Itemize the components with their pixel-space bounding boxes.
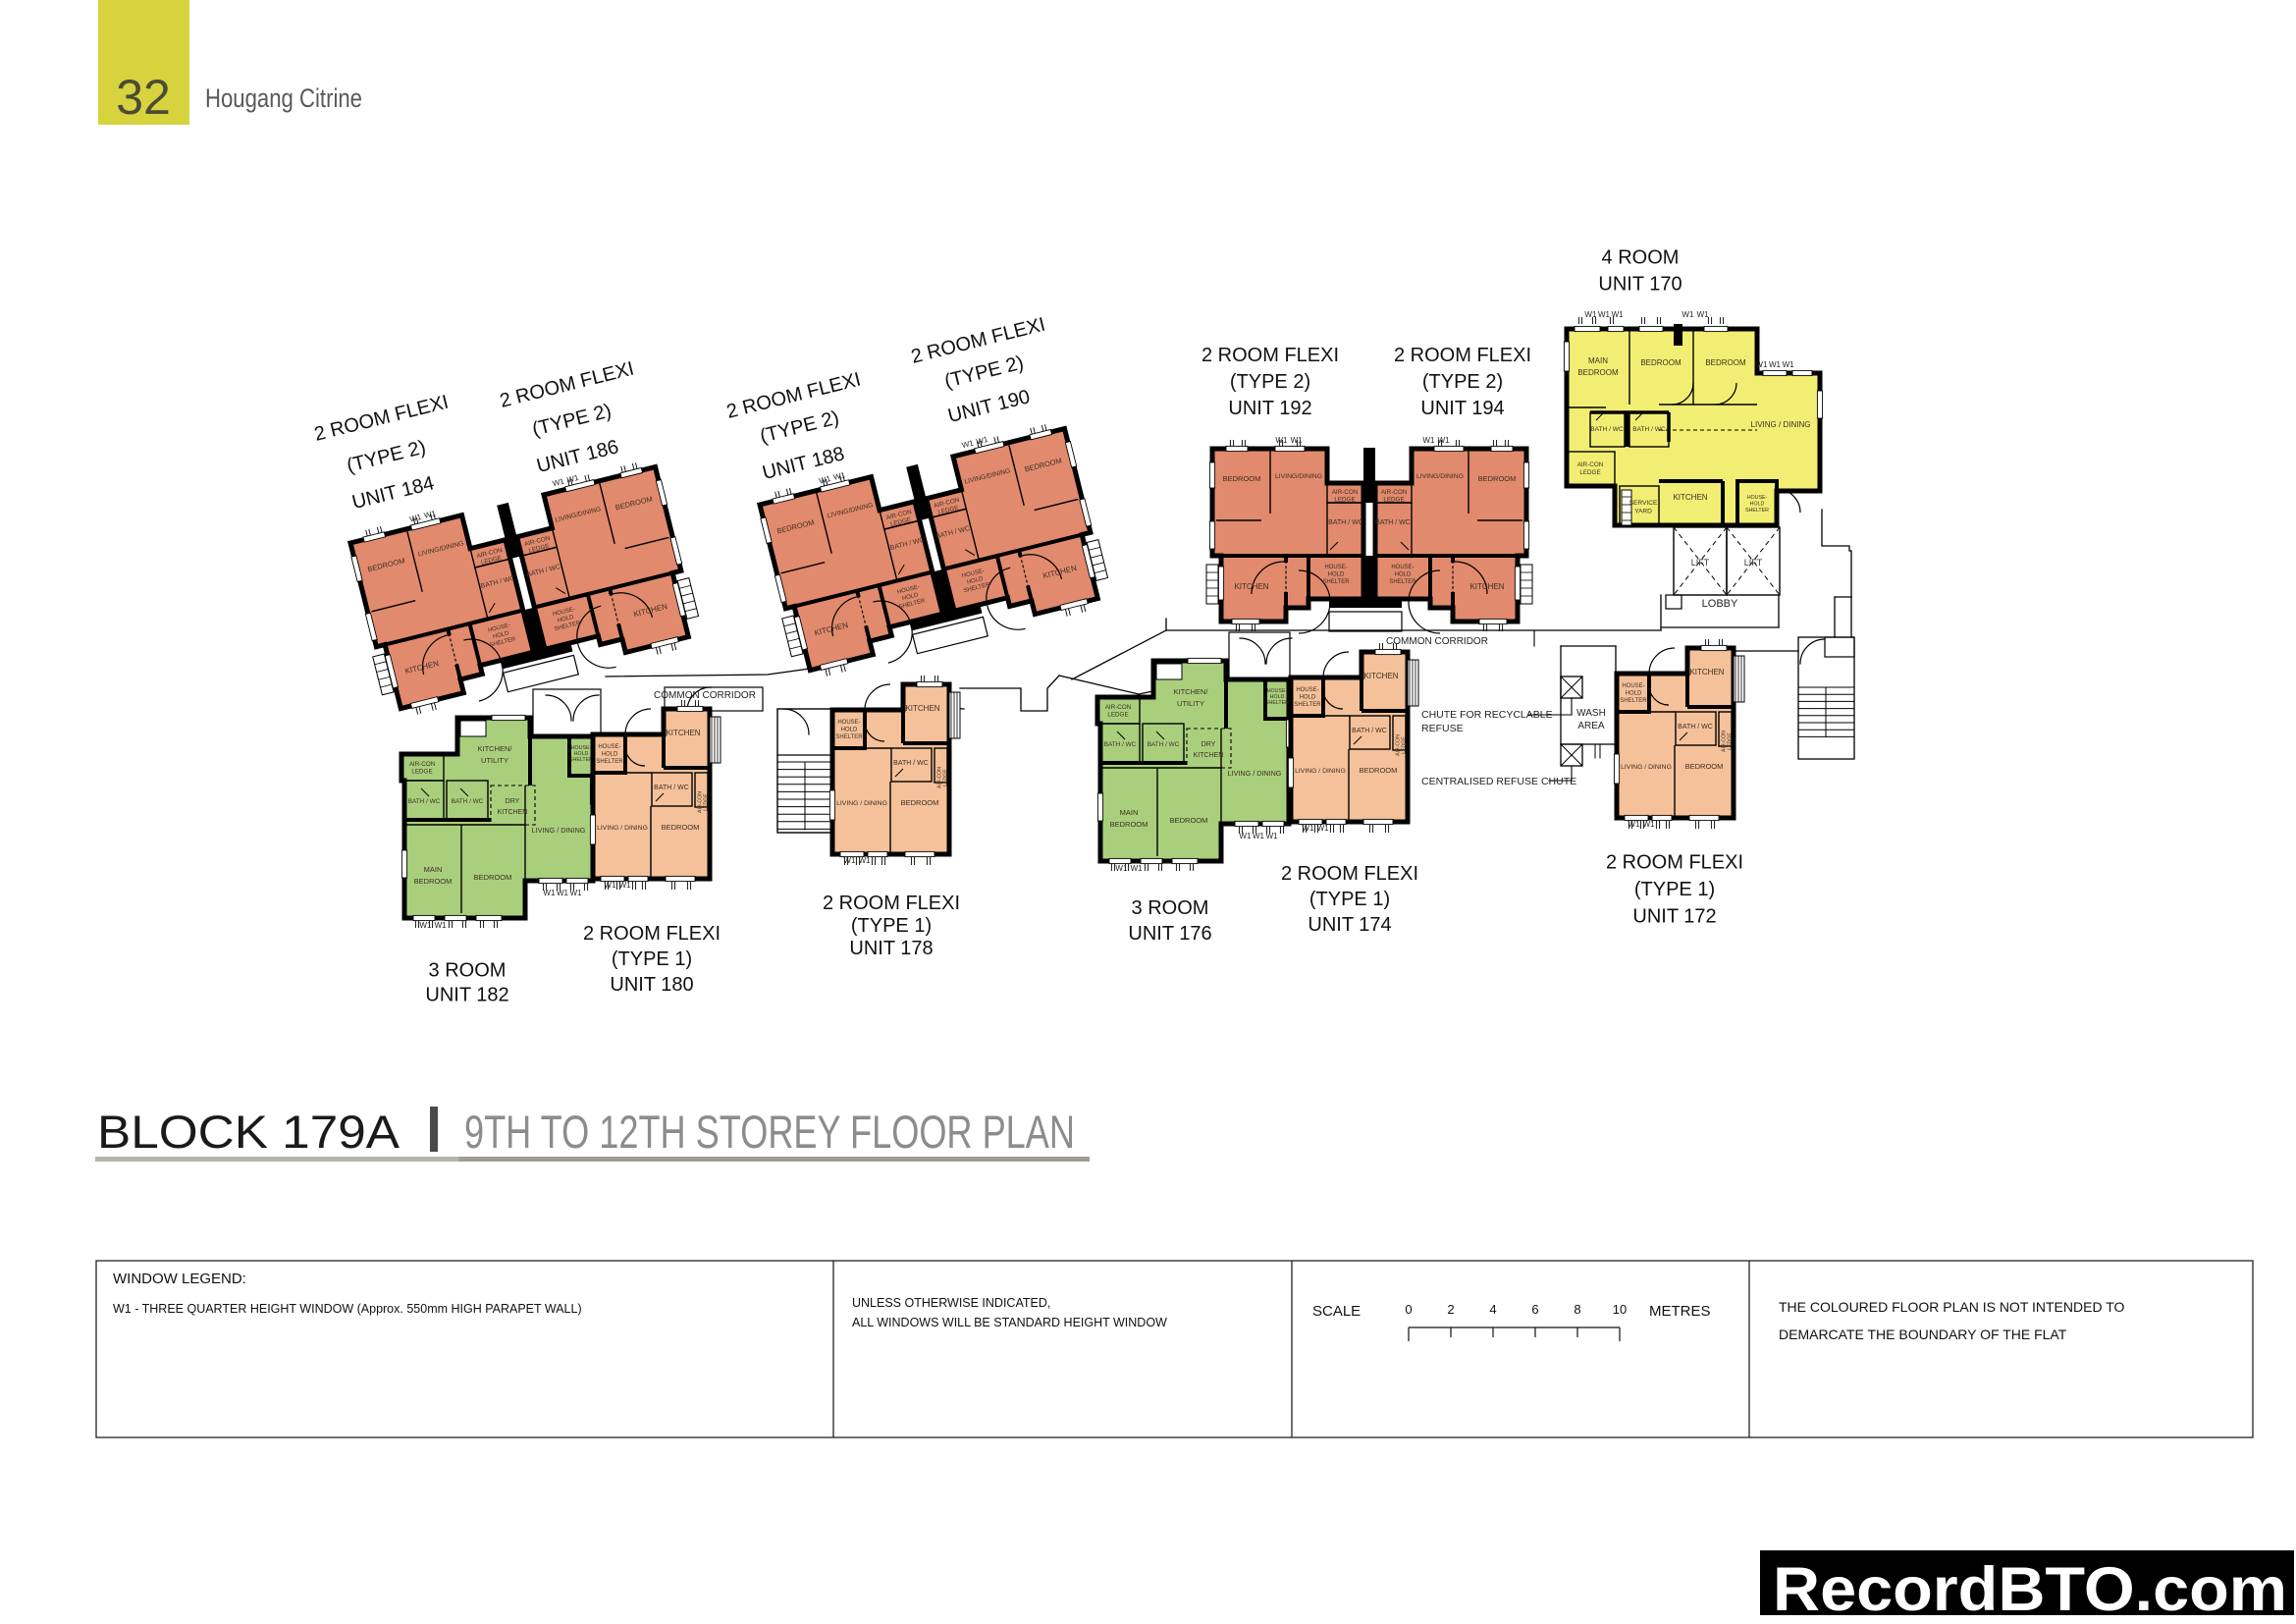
svg-text:LIVING/DINING: LIVING/DINING: [1416, 473, 1464, 480]
svg-text:4: 4: [1489, 1302, 1496, 1317]
svg-text:W1 W1 W1: W1 W1 W1: [1755, 360, 1794, 369]
svg-text:32: 32: [116, 70, 171, 125]
svg-text:MAIN: MAIN: [1588, 356, 1608, 365]
svg-text:DEMARCATE THE BOUNDARY OF THE: DEMARCATE THE BOUNDARY OF THE FLAT: [1779, 1326, 2067, 1342]
svg-text:W1 W1: W1 W1: [1682, 310, 1709, 319]
svg-text:BATH / WC: BATH / WC: [1104, 741, 1137, 748]
svg-text:HOUSE-: HOUSE-: [1296, 687, 1318, 693]
svg-text:SHELTER: SHELTER: [1265, 700, 1289, 706]
svg-text:LEDGE: LEDGE: [943, 769, 949, 786]
svg-text:KITCHEN: KITCHEN: [1194, 752, 1224, 759]
svg-text:BATH / WC: BATH / WC: [1678, 724, 1713, 731]
svg-text:UNIT 180: UNIT 180: [610, 974, 693, 996]
svg-text:BEDROOM: BEDROOM: [1577, 368, 1619, 377]
svg-text:2 ROOM FLEXI: 2 ROOM FLEXI: [1281, 863, 1418, 885]
svg-text:W1 W1 W1: W1 W1 W1: [1239, 832, 1278, 840]
svg-text:MAIN: MAIN: [424, 865, 443, 874]
svg-text:SHELTER: SHELTER: [1294, 702, 1321, 708]
svg-text:3 ROOM: 3 ROOM: [1132, 897, 1209, 919]
svg-text:HOUSE-: HOUSE-: [1391, 565, 1414, 570]
svg-text:BEDROOM: BEDROOM: [662, 823, 700, 832]
svg-text:KITCHEN: KITCHEN: [1234, 582, 1268, 591]
svg-text:HOLD: HOLD: [1300, 695, 1316, 701]
svg-text:HOUSE-: HOUSE-: [1747, 495, 1768, 501]
svg-text:AIR-CON: AIR-CON: [409, 761, 436, 768]
svg-text:SHELTER: SHELTER: [596, 759, 623, 765]
svg-text:LOBBY: LOBBY: [1702, 598, 1738, 610]
svg-text:BEDROOM: BEDROOM: [1170, 816, 1208, 825]
svg-text:W1 - THREE QUARTER HEIGHT WIND: W1 - THREE QUARTER HEIGHT WINDOW (Approx…: [113, 1302, 582, 1316]
svg-text:0: 0: [1405, 1302, 1412, 1317]
svg-text:AREA: AREA: [1577, 721, 1605, 731]
svg-text:RecordBTO.com: RecordBTO.com: [1773, 1555, 2287, 1624]
svg-text:KITCHEN: KITCHEN: [666, 729, 700, 737]
svg-text:UNIT 172: UNIT 172: [1632, 906, 1716, 928]
svg-text:(TYPE 2): (TYPE 2): [1422, 371, 1503, 393]
svg-text:UNIT 182: UNIT 182: [425, 985, 508, 1006]
svg-text:WINDOW LEGEND:: WINDOW LEGEND:: [113, 1271, 246, 1287]
svg-text:6: 6: [1531, 1302, 1538, 1317]
svg-text:2 ROOM FLEXI: 2 ROOM FLEXI: [1606, 852, 1743, 874]
svg-text:CENTRALISED REFUSE CHUTE: CENTRALISED REFUSE CHUTE: [1421, 776, 1576, 787]
svg-text:9TH TO 12TH STOREY FLOOR PLAN: 9TH TO 12TH STOREY FLOOR PLAN: [464, 1106, 1075, 1158]
svg-text:LEDGE: LEDGE: [1402, 736, 1408, 754]
svg-text:LEDGE: LEDGE: [704, 793, 710, 811]
svg-text:BEDROOM: BEDROOM: [1223, 474, 1261, 483]
svg-text:LIVING/DINING: LIVING/DINING: [1275, 473, 1322, 480]
svg-text:UTILITY: UTILITY: [481, 756, 508, 765]
svg-text:W1 W1: W1 W1: [1115, 864, 1143, 873]
svg-text:BEDROOM: BEDROOM: [1640, 358, 1682, 367]
svg-text:LIVING / DINING: LIVING / DINING: [532, 826, 586, 835]
svg-text:3 ROOM: 3 ROOM: [429, 960, 507, 982]
svg-text:2 ROOM FLEXI: 2 ROOM FLEXI: [1394, 345, 1531, 366]
svg-text:CHUTE FOR RECYCLABLE: CHUTE FOR RECYCLABLE: [1421, 709, 1553, 721]
svg-text:LEDGE: LEDGE: [1334, 497, 1355, 504]
svg-text:HOUSE-: HOUSE-: [598, 744, 620, 750]
svg-text:UTILITY: UTILITY: [1177, 699, 1204, 708]
svg-text:HOLD: HOLD: [1328, 572, 1345, 578]
svg-text:BEDROOM: BEDROOM: [1478, 474, 1517, 483]
svg-text:KITCHEN: KITCHEN: [1469, 582, 1504, 591]
svg-text:SCALE: SCALE: [1312, 1303, 1361, 1320]
svg-text:KITCHEN: KITCHEN: [905, 704, 939, 713]
svg-text:SHELTER: SHELTER: [569, 757, 593, 763]
svg-text:HOLD: HOLD: [1626, 691, 1642, 697]
svg-text:SHELTER: SHELTER: [1322, 579, 1350, 585]
svg-text:COMMON CORRIDOR: COMMON CORRIDOR: [1386, 636, 1488, 647]
svg-text:SHELTER: SHELTER: [1745, 508, 1769, 514]
svg-text:4 ROOM: 4 ROOM: [1602, 247, 1680, 269]
svg-text:2: 2: [1447, 1302, 1454, 1317]
svg-text:(TYPE 1): (TYPE 1): [612, 948, 692, 970]
svg-text:LEDGE: LEDGE: [1107, 712, 1128, 719]
svg-text:MAIN: MAIN: [1120, 808, 1139, 817]
svg-text:W1 W1 W1: W1 W1 W1: [543, 889, 582, 897]
svg-text:UNIT 194: UNIT 194: [1420, 398, 1504, 419]
svg-text:HOUSE-: HOUSE-: [1324, 565, 1347, 570]
svg-text:COMMON CORRIDOR: COMMON CORRIDOR: [654, 690, 756, 701]
svg-text:HOLD: HOLD: [1395, 572, 1412, 578]
svg-text:WASH: WASH: [1576, 708, 1606, 719]
svg-text:ALL WINDOWS WILL BE STANDARD H: ALL WINDOWS WILL BE STANDARD HEIGHT WIND…: [852, 1316, 1167, 1329]
svg-text:UNIT 178: UNIT 178: [849, 938, 933, 959]
svg-text:2 ROOM FLEXI: 2 ROOM FLEXI: [1201, 345, 1339, 366]
svg-text:METRES: METRES: [1649, 1303, 1711, 1320]
svg-text:UNIT 176: UNIT 176: [1128, 923, 1211, 945]
svg-text:AIR-CON: AIR-CON: [1577, 461, 1604, 468]
svg-text:THE COLOURED FLOOR PLAN IS NOT: THE COLOURED FLOOR PLAN IS NOT INTENDED …: [1779, 1299, 2125, 1315]
svg-text:BEDROOM: BEDROOM: [1685, 762, 1724, 771]
svg-text:LIVING / DINING: LIVING / DINING: [597, 825, 648, 832]
svg-text:DRY: DRY: [506, 798, 520, 805]
svg-text:W1 W1: W1 W1: [1422, 436, 1450, 445]
svg-text:KITCHEN: KITCHEN: [1689, 668, 1724, 677]
svg-text:BEDROOM: BEDROOM: [1110, 820, 1148, 829]
svg-text:LIVING / DINING: LIVING / DINING: [1228, 769, 1282, 778]
svg-text:LEDGE: LEDGE: [1579, 469, 1600, 476]
svg-text:(TYPE 1): (TYPE 1): [1634, 879, 1715, 900]
svg-text:BATH / WC: BATH / WC: [654, 785, 689, 791]
svg-text:SHELTER: SHELTER: [1620, 698, 1647, 704]
svg-text:BATH / WC: BATH / WC: [893, 760, 929, 767]
svg-text:KITCHEN/: KITCHEN/: [1173, 687, 1208, 696]
svg-text:BEDROOM: BEDROOM: [414, 877, 453, 886]
svg-text:KITCHEN/: KITCHEN/: [477, 744, 512, 753]
svg-text:BEDROOM: BEDROOM: [901, 798, 939, 807]
svg-text:Hougang Citrine: Hougang Citrine: [205, 83, 362, 113]
svg-text:BATH / WC: BATH / WC: [1328, 519, 1363, 526]
svg-text:BEDROOM: BEDROOM: [474, 873, 512, 882]
svg-text:BATH / WC: BATH / WC: [1148, 741, 1180, 748]
svg-text:REFUSE: REFUSE: [1421, 723, 1464, 734]
svg-text:AIR-CON: AIR-CON: [1381, 489, 1408, 496]
svg-text:BATH / WC: BATH / WC: [1352, 728, 1387, 734]
svg-text:10: 10: [1613, 1302, 1627, 1317]
svg-text:SERVICE: SERVICE: [1629, 500, 1658, 507]
svg-text:UNIT 174: UNIT 174: [1308, 914, 1391, 936]
svg-text:AIR-CON: AIR-CON: [1105, 704, 1132, 711]
svg-text:DRY: DRY: [1201, 741, 1216, 748]
svg-text:SHELTER: SHELTER: [1389, 579, 1416, 585]
svg-text:LIFT: LIFT: [1691, 558, 1710, 568]
svg-text:W1 W1: W1 W1: [1275, 436, 1303, 445]
svg-text:2 ROOM FLEXI: 2 ROOM FLEXI: [583, 923, 721, 945]
svg-text:BEDROOM: BEDROOM: [1705, 358, 1746, 367]
svg-text:HOLD: HOLD: [1750, 502, 1765, 508]
svg-text:YARD: YARD: [1634, 509, 1652, 515]
svg-text:HOUSE-: HOUSE-: [837, 720, 860, 726]
svg-text:LIVING / DINING: LIVING / DINING: [1295, 768, 1346, 775]
svg-text:LIFT: LIFT: [1744, 558, 1763, 568]
svg-text:2 ROOM FLEXI: 2 ROOM FLEXI: [823, 893, 960, 914]
svg-text:LEDGE: LEDGE: [1728, 732, 1734, 750]
svg-text:W1 W1 W1: W1 W1 W1: [1584, 310, 1624, 319]
svg-text:HOUSE-: HOUSE-: [1622, 683, 1644, 689]
svg-text:LEDGE: LEDGE: [411, 769, 432, 776]
svg-text:W1 W1: W1 W1: [843, 856, 871, 865]
svg-text:UNLESS OTHERWISE INDICATED,: UNLESS OTHERWISE INDICATED,: [852, 1296, 1050, 1310]
svg-text:AIR-CON: AIR-CON: [1332, 489, 1359, 496]
svg-text:LEDGE: LEDGE: [1383, 497, 1404, 504]
svg-text:UNIT 192: UNIT 192: [1228, 398, 1311, 419]
svg-text:(TYPE 1): (TYPE 1): [851, 915, 932, 937]
svg-text:UNIT 170: UNIT 170: [1598, 274, 1682, 296]
svg-text:W1 W1: W1 W1: [419, 921, 447, 930]
svg-text:HOLD: HOLD: [841, 728, 858, 733]
svg-text:(TYPE 1): (TYPE 1): [1309, 889, 1390, 910]
svg-text:KITCHEN: KITCHEN: [498, 809, 528, 816]
svg-text:8: 8: [1574, 1302, 1580, 1317]
svg-text:KITCHEN: KITCHEN: [1673, 493, 1707, 502]
svg-text:LIVING / DINING: LIVING / DINING: [1751, 420, 1811, 429]
svg-text:LIVING / DINING: LIVING / DINING: [836, 800, 887, 807]
svg-text:(TYPE 2): (TYPE 2): [1230, 371, 1310, 393]
svg-text:BATH / WC: BATH / WC: [1632, 426, 1666, 433]
svg-text:W1 W1: W1 W1: [1628, 820, 1655, 829]
svg-text:BATH / WC: BATH / WC: [452, 798, 484, 805]
svg-text:W1 W1: W1 W1: [604, 881, 631, 890]
svg-text:HOLD: HOLD: [602, 752, 618, 758]
svg-text:W1 W1: W1 W1: [1302, 824, 1329, 833]
svg-text:KITCHEN: KITCHEN: [1363, 672, 1398, 680]
svg-text:BLOCK 179A: BLOCK 179A: [97, 1106, 400, 1158]
svg-text:BATH / WC: BATH / WC: [1590, 426, 1624, 433]
svg-text:BEDROOM: BEDROOM: [1360, 766, 1398, 775]
svg-text:LIVING / DINING: LIVING / DINING: [1621, 764, 1672, 771]
svg-text:BATH / WC: BATH / WC: [1375, 519, 1411, 526]
svg-text:BATH / WC: BATH / WC: [408, 798, 441, 805]
svg-text:SHELTER: SHELTER: [835, 734, 863, 740]
